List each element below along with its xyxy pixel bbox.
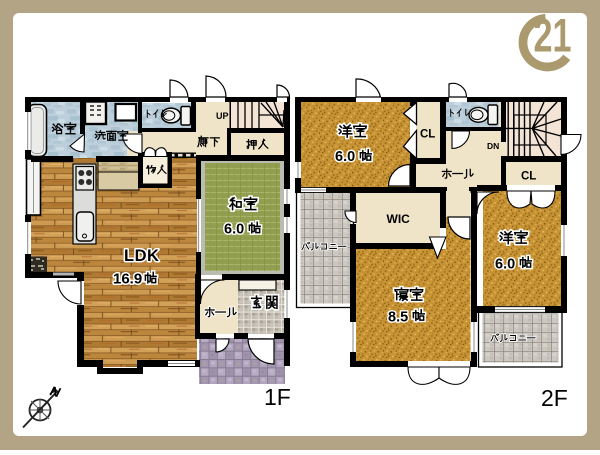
svg-text:8.5: 8.5 <box>388 310 408 326</box>
svg-text:2F: 2F <box>541 385 568 411</box>
svg-text:6.0: 6.0 <box>335 149 355 165</box>
svg-text:LDK: LDK <box>124 247 159 265</box>
svg-text:WIC: WIC <box>387 212 411 226</box>
svg-text:16.9: 16.9 <box>113 271 142 288</box>
svg-text:6.0: 6.0 <box>495 257 515 273</box>
svg-text:UP: UP <box>216 111 229 121</box>
svg-text:CL: CL <box>521 171 536 183</box>
svg-text:1F: 1F <box>264 384 291 410</box>
svg-text:21: 21 <box>534 9 572 62</box>
svg-text:DN: DN <box>487 141 499 151</box>
svg-text:CL: CL <box>420 129 435 141</box>
svg-text:6.0: 6.0 <box>224 222 244 238</box>
